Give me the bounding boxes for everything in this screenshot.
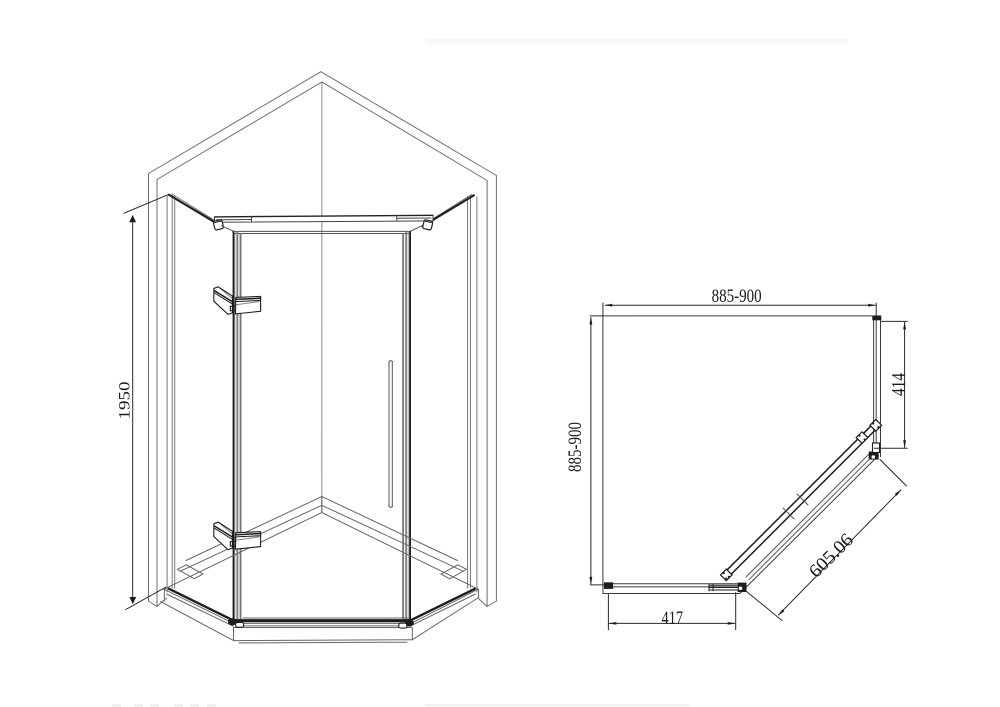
svg-text:417: 417: [662, 608, 684, 629]
svg-text:605.06: 605.06: [805, 530, 858, 583]
svg-text:885-900: 885-900: [565, 422, 586, 472]
svg-text:414: 414: [888, 373, 909, 396]
svg-text:1950: 1950: [116, 381, 133, 419]
svg-text:885-900: 885-900: [712, 286, 762, 307]
